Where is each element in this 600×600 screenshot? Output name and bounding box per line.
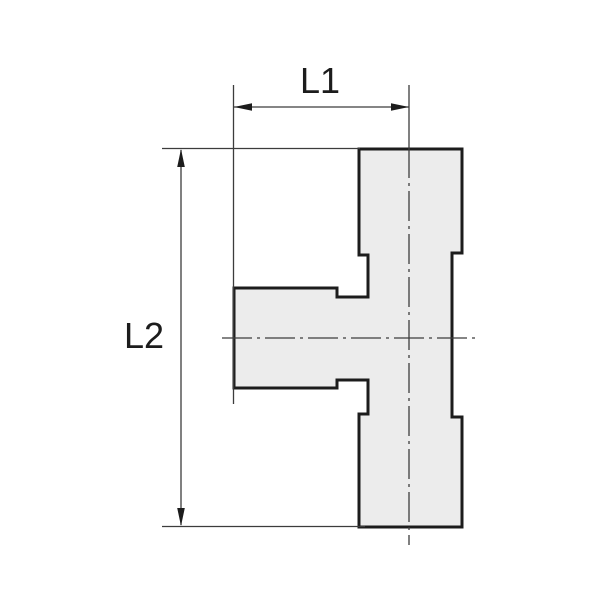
t-fitting-technical-drawing: L1 L2 <box>0 0 600 600</box>
l2-arrow-down-icon <box>177 508 185 526</box>
l2-arrow-up-icon <box>177 149 185 167</box>
l1-arrow-left-icon <box>234 103 252 111</box>
l1-dimension-label: L1 <box>300 60 340 101</box>
l1-arrow-right-icon <box>391 103 409 111</box>
drawing-canvas: L1 L2 <box>0 0 600 600</box>
l2-dimension-label: L2 <box>124 315 164 356</box>
